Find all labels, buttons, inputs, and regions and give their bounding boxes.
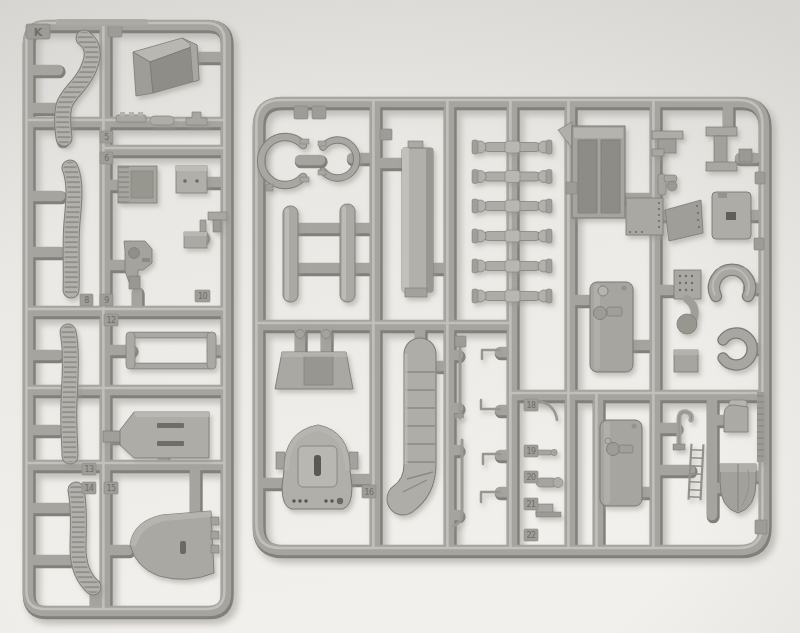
spindle	[472, 289, 552, 303]
cylinder-part	[536, 478, 563, 488]
blank-tab	[312, 106, 326, 119]
blank-tab	[755, 520, 767, 534]
fuel-tank-lower	[600, 420, 642, 506]
tab-number: 21	[526, 500, 536, 509]
tab-number: 8	[84, 296, 89, 305]
blank-tab	[754, 238, 764, 250]
gate-letter: K	[34, 26, 43, 39]
perforated-plate-1	[626, 198, 663, 235]
sprue-photo-canvas: K 5 6 8 9 10 12 13 14 15	[0, 0, 800, 633]
photo-model-kit-sprues: K 5 6 8 9 10 12 13 14 15	[0, 0, 800, 633]
tab-number: 19	[526, 447, 536, 456]
blank-tab	[566, 182, 577, 194]
blank-tab	[755, 172, 765, 184]
tab-number: 20	[526, 473, 536, 482]
track-run-upper	[70, 168, 74, 290]
small-detail-box	[184, 232, 207, 248]
serrated-strip	[757, 392, 764, 462]
small-box-part	[674, 350, 698, 372]
segmented-fender	[403, 354, 435, 499]
tab-number: 12	[106, 316, 116, 325]
blank-tab	[380, 129, 392, 140]
tab-number: 5	[104, 133, 109, 142]
spindle	[472, 229, 552, 243]
blank-tab	[294, 106, 308, 119]
fender-plank	[402, 141, 433, 297]
spindle	[472, 170, 552, 184]
suspension-bar-right	[340, 204, 355, 302]
tab-number: 15	[106, 484, 116, 493]
tab-number: 14	[84, 484, 94, 493]
spindle	[472, 199, 552, 213]
spindle	[472, 140, 552, 154]
radiator-grille-plate	[118, 166, 157, 203]
blank-tab	[455, 336, 466, 347]
tab-number: 18	[526, 401, 536, 410]
suspension-bar-left	[283, 206, 298, 302]
spindle	[472, 259, 552, 273]
tab-number: 6	[104, 154, 109, 163]
blank-tab	[108, 25, 122, 37]
pin-part	[536, 449, 557, 455]
tab-number: 10	[198, 292, 208, 301]
fuel-tank-upper	[590, 282, 633, 372]
tab-number: 22	[526, 531, 536, 540]
track-run-lower	[68, 332, 70, 456]
embossed-text-strip	[56, 19, 148, 26]
detail-box	[176, 166, 207, 193]
plate-with-hole	[712, 192, 751, 239]
tab-number: 13	[84, 465, 94, 474]
tab-number: 16	[364, 488, 374, 497]
tab-number: 9	[104, 296, 109, 305]
